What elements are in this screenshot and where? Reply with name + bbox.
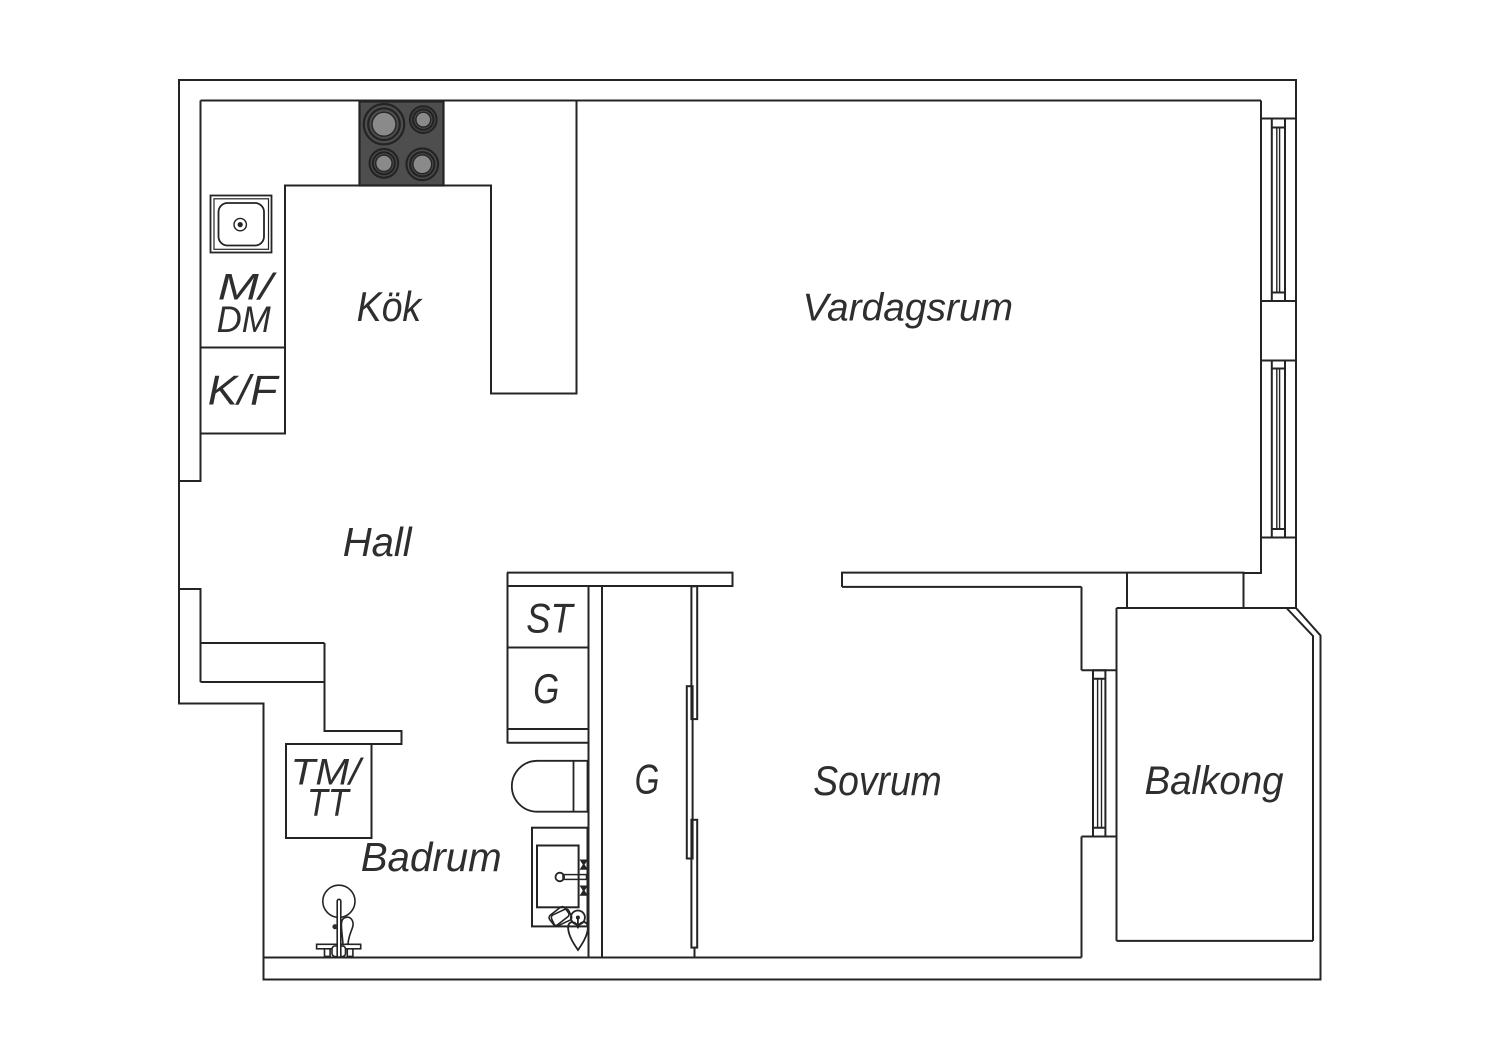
svg-text:Sovrum: Sovrum [813, 757, 942, 804]
svg-text:Balkong: Balkong [1145, 759, 1284, 803]
svg-text:TT: TT [307, 782, 351, 825]
svg-text:K/F: K/F [208, 366, 280, 413]
svg-text:G: G [533, 665, 559, 712]
svg-text:Vardagsrum: Vardagsrum [803, 286, 1014, 329]
svg-text:Hall: Hall [343, 519, 414, 565]
svg-text:Badrum: Badrum [361, 834, 502, 880]
svg-text:Kök: Kök [357, 283, 424, 330]
svg-text:ST: ST [526, 594, 575, 641]
svg-text:DM: DM [217, 298, 272, 340]
svg-text:G: G [635, 756, 660, 803]
